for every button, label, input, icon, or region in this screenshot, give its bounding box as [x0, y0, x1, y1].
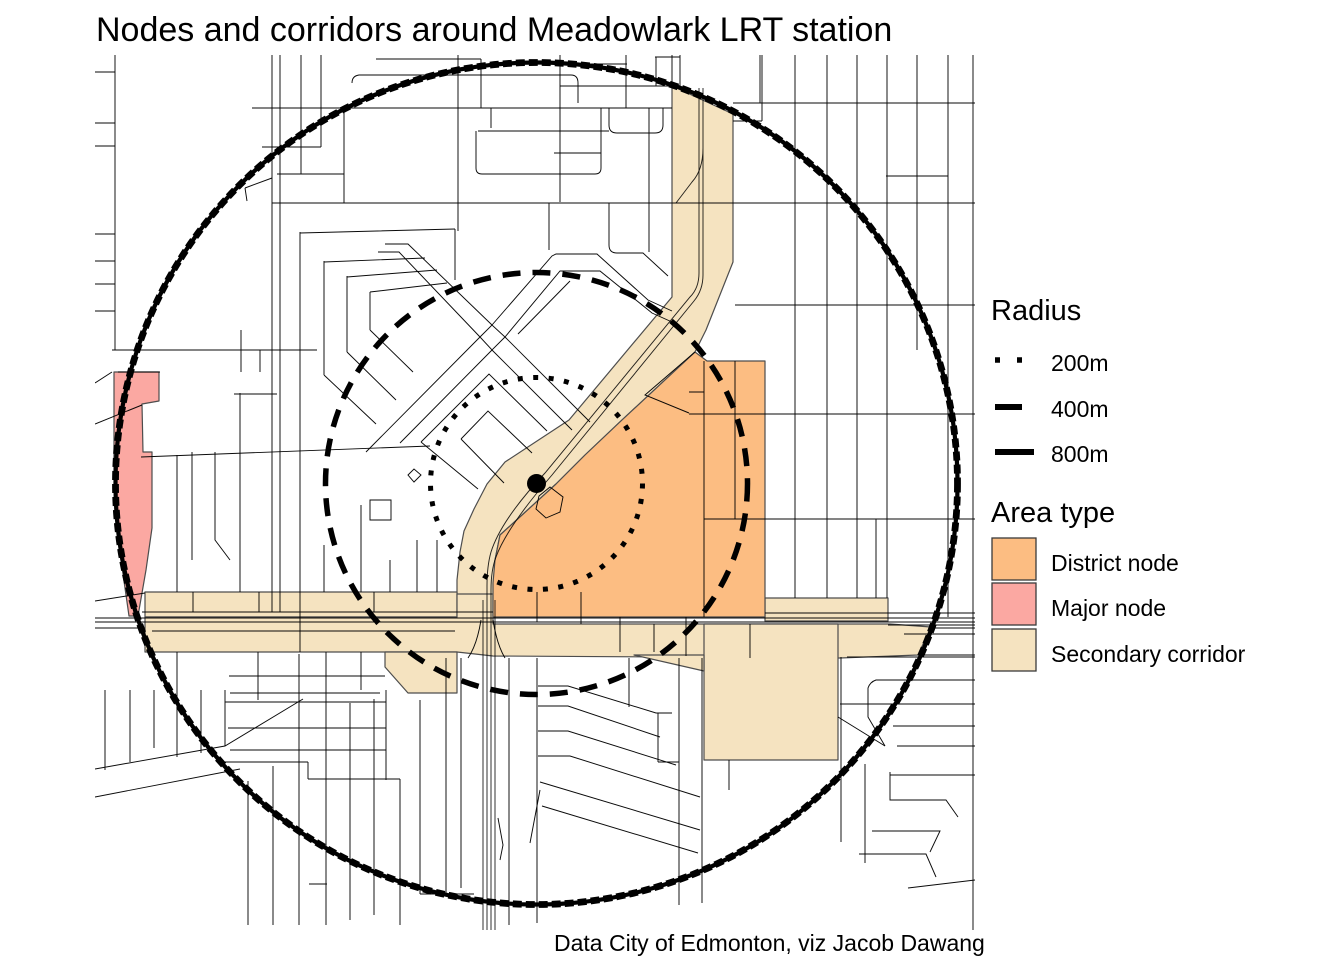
- svg-text:Area type: Area type: [991, 497, 1115, 529]
- svg-text:Secondary corridor: Secondary corridor: [1051, 641, 1246, 667]
- svg-text:Radius: Radius: [991, 295, 1081, 327]
- svg-text:District node: District node: [1051, 550, 1179, 576]
- svg-text:Nodes and corridors around Mea: Nodes and corridors around Meadowlark LR…: [96, 11, 892, 49]
- svg-text:400m: 400m: [1051, 396, 1109, 422]
- svg-text:200m: 200m: [1051, 350, 1109, 376]
- svg-text:800m: 800m: [1051, 441, 1109, 467]
- svg-text:Major node: Major node: [1051, 595, 1166, 621]
- svg-text:Data City of Edmonton, viz Jac: Data City of Edmonton, viz Jacob Dawang: [554, 930, 985, 956]
